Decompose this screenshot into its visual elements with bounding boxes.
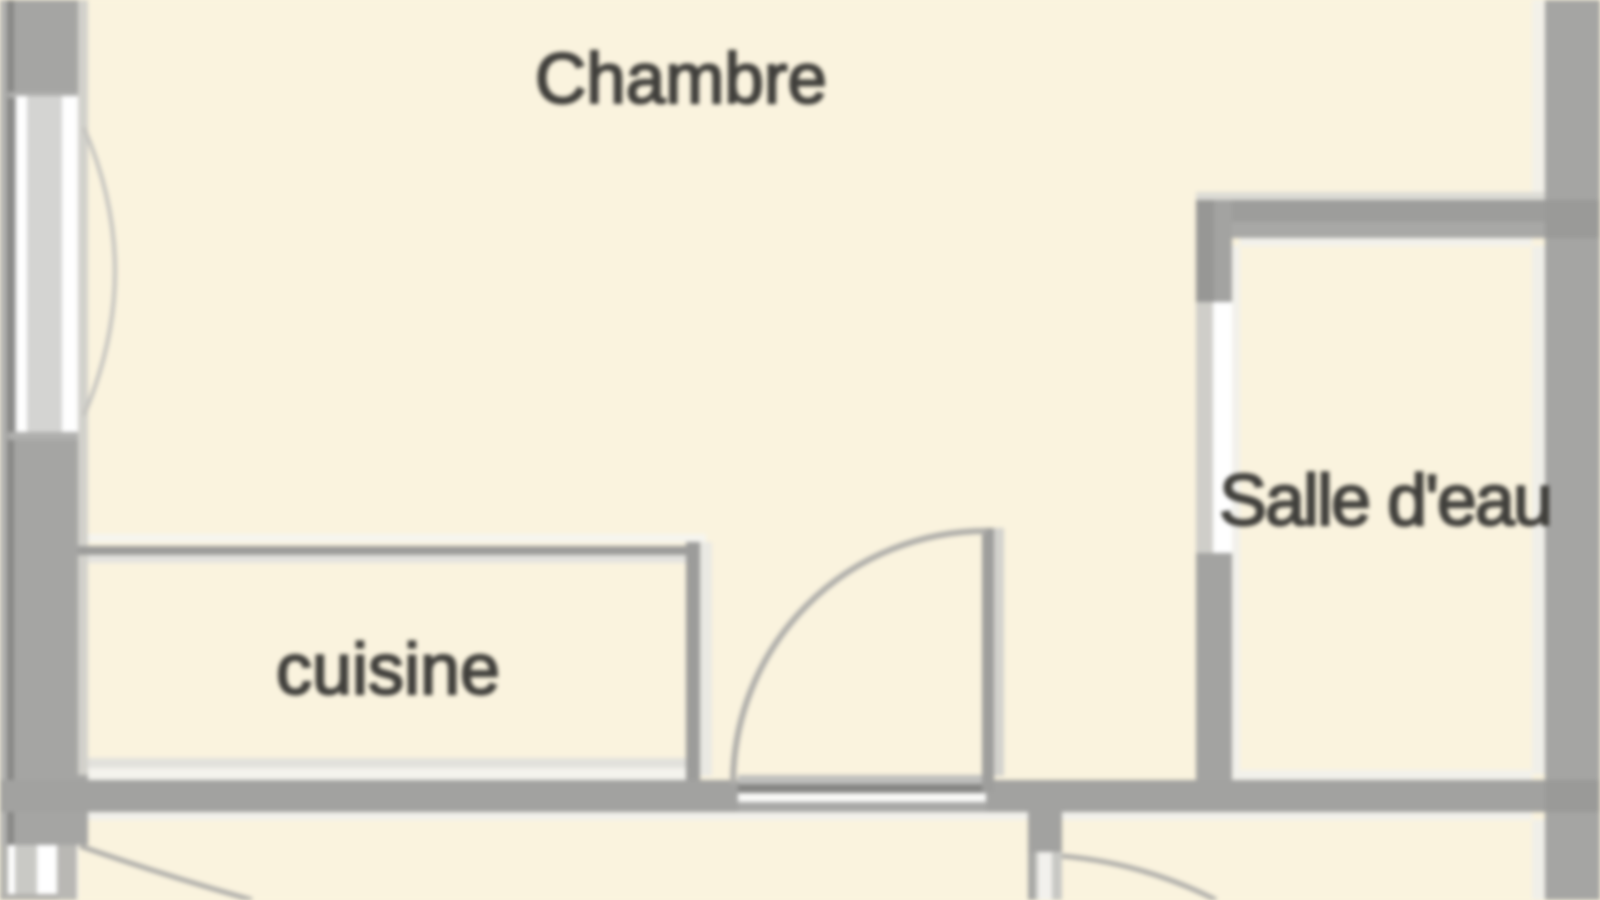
svg-text:Chambre: Chambre <box>535 40 827 119</box>
svg-text:cuisine: cuisine <box>276 630 500 710</box>
svg-text:Salle d'eau: Salle d'eau <box>1219 461 1551 541</box>
